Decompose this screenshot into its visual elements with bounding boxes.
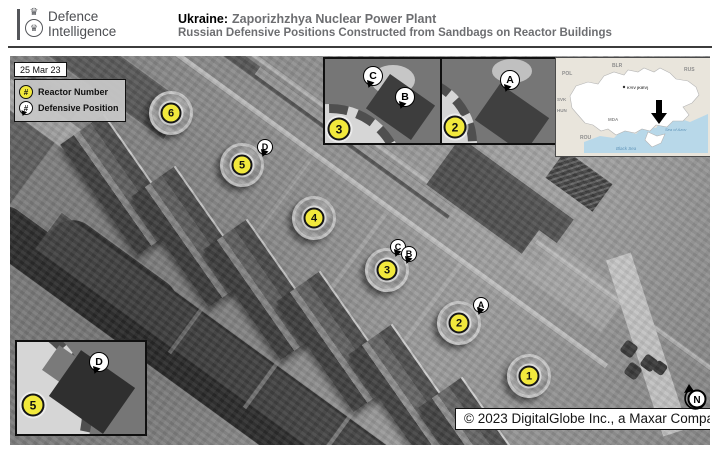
position-pin-B-label: B (406, 249, 413, 259)
inset5-badge-label: 5 (30, 398, 37, 412)
map-label-sea-of-azov: Sea of Azov (665, 127, 687, 132)
map-label-kyiv: KYIV (KIEV) (627, 86, 649, 90)
map-label-ROU: ROU (580, 135, 592, 141)
org-name: Defence Intelligence (48, 9, 116, 39)
inset2-reactor-badge: 2 (444, 116, 467, 139)
kyiv-dot (623, 86, 625, 88)
inset2-badge-label: 2 (452, 120, 459, 134)
position-pin-D: D (257, 139, 273, 155)
reactor-marker-3-label: 3 (384, 264, 390, 276)
legend-box: # Reactor Number # Defensive Position (14, 79, 126, 122)
inset-photo-reactor2: A 2 (440, 57, 557, 145)
compass-n-label: N (693, 395, 700, 406)
map-label-MDA: MDA (608, 117, 619, 122)
inset3-pin-B: B (395, 87, 415, 107)
header-rule (8, 46, 712, 48)
page-title: Ukraine:Zaporizhzhya Nuclear Power Plant (178, 12, 436, 26)
map-label-SVK: SVK (557, 97, 567, 102)
defensive-position-icon: # (19, 101, 33, 115)
inset2-pin-A-label: A (506, 74, 514, 86)
date-badge: 25 Mar 23 (14, 62, 67, 77)
inset3-pin-C-label: C (369, 70, 377, 82)
inset5-pin-D: D (89, 352, 109, 372)
legend-row-position: # Defensive Position (19, 101, 119, 115)
legend-position-label: Defensive Position (38, 103, 119, 113)
inset3-pin-C: C (363, 66, 383, 86)
title-country: Ukraine: (178, 12, 228, 26)
reactor-marker-6: 6 (161, 103, 182, 124)
north-arrow: N (682, 384, 710, 412)
inset3-pin-B-label: B (401, 91, 409, 103)
ukraine-map-svg: POL BLR RUS SVK HUN MDA ROU KYIV (KIEV) … (556, 58, 708, 153)
reactor-symbol: # (24, 88, 28, 97)
inset-photo-reactor3: C B 3 (323, 57, 442, 145)
org-name-line1: Defence (48, 9, 116, 24)
inset3-reactor-badge: 3 (328, 118, 351, 141)
inset5-reactor-badge: 5 (22, 394, 45, 417)
position-pin-A: A (473, 297, 489, 313)
position-pin-D-label: D (262, 142, 269, 152)
map-label-POL: POL (562, 71, 572, 77)
building-right-light (512, 230, 628, 332)
page-subtitle: Russian Defensive Positions Constructed … (178, 27, 612, 39)
position-symbol: # (24, 104, 28, 113)
reactor-marker-2-label: 2 (456, 317, 462, 329)
reactor-marker-1: 1 (519, 366, 540, 387)
position-pin-B: B (401, 246, 417, 262)
reactor-marker-3: 3 (377, 260, 398, 281)
mod-crest-icon: ♛ ♛ (22, 8, 46, 37)
north-arrow-svg: N (682, 384, 710, 412)
satellite-image: 6 5 4 3 2 1 D C B A 25 Mar 23 # Reactor … (10, 56, 710, 445)
inset3-badge-label: 3 (336, 122, 343, 136)
logo-divider-bar (17, 9, 20, 40)
legend-reactor-label: Reactor Number (38, 87, 108, 97)
reactor-marker-5-label: 5 (239, 159, 245, 171)
ukraine-locator-map: POL BLR RUS SVK HUN MDA ROU KYIV (KIEV) … (555, 57, 710, 157)
org-name-line2: Intelligence (48, 24, 116, 39)
inset2-pin-A: A (500, 70, 520, 90)
map-label-black-sea: Black Sea (616, 146, 637, 151)
reactor-marker-5: 5 (232, 155, 253, 176)
title-site: Zaporizhzhya Nuclear Power Plant (232, 12, 436, 26)
map-label-RUS: RUS (684, 67, 695, 73)
crown-icon: ♛ (22, 8, 46, 18)
reactor-marker-4-label: 4 (311, 212, 317, 224)
reactor-marker-1-label: 1 (526, 370, 532, 382)
legend-row-reactor: # Reactor Number (19, 85, 119, 99)
solar-panel-block (546, 150, 613, 212)
map-label-BLR: BLR (612, 63, 623, 69)
inset5-pin-D-label: D (95, 356, 103, 368)
reactor-marker-4: 4 (304, 208, 325, 229)
inset-photo-reactor5: D 5 (15, 340, 147, 436)
position-pin-C-label: C (395, 242, 402, 252)
map-label-HUN: HUN (557, 108, 567, 113)
report-page: ♛ ♛ Defence Intelligence Ukraine:Zaporiz… (0, 0, 720, 450)
crest-ring-icon: ♛ (25, 19, 43, 37)
reactor-number-icon: # (19, 85, 33, 99)
reactor-marker-6-label: 6 (168, 107, 174, 119)
copyright-attribution: © 2023 DigitalGlobe Inc., a Maxar Compan… (455, 408, 710, 430)
inset2-dark-building (475, 84, 549, 145)
reactor-marker-2: 2 (449, 313, 470, 334)
position-pin-A-label: A (478, 300, 485, 310)
